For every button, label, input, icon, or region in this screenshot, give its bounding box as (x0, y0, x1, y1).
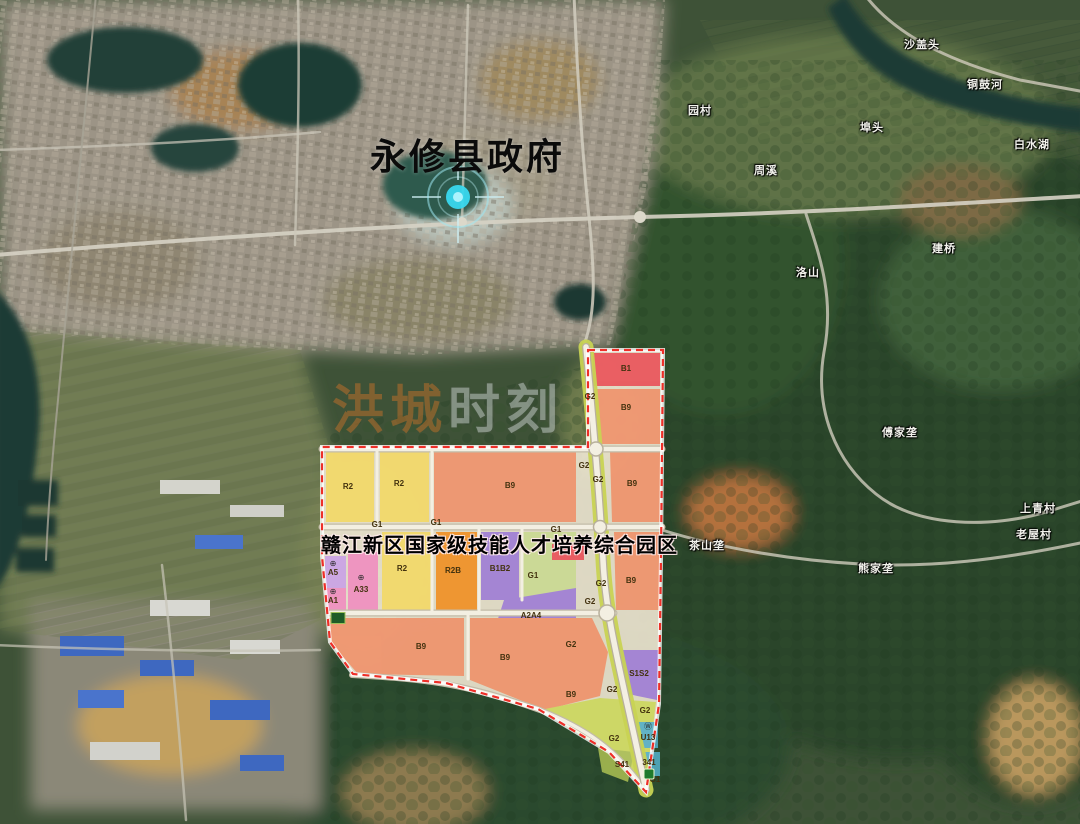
parcel-b1 (593, 353, 660, 386)
satellite-map-svg (0, 0, 1080, 824)
parcel-r2-a (326, 452, 374, 522)
parcel-b9-e (614, 532, 660, 610)
parcel-r2b (436, 532, 477, 610)
parcel-b1-small (552, 544, 584, 560)
parcel-b9-mid (434, 452, 576, 522)
parcel-a5 (325, 556, 346, 588)
parcel-a33 (348, 552, 378, 610)
parcel-b9-ne (610, 452, 660, 522)
parcel-b1b2 (481, 532, 519, 600)
parcel-b9-top (593, 389, 660, 444)
parcel-r2-c (382, 532, 431, 610)
map-viewport[interactable]: 洪城时刻 永修县政府 赣江新区国家级技能人才培养综合园区 园村周溪沙盖头铜鼓河白… (0, 0, 1080, 824)
parcel-r2-b (380, 452, 429, 522)
